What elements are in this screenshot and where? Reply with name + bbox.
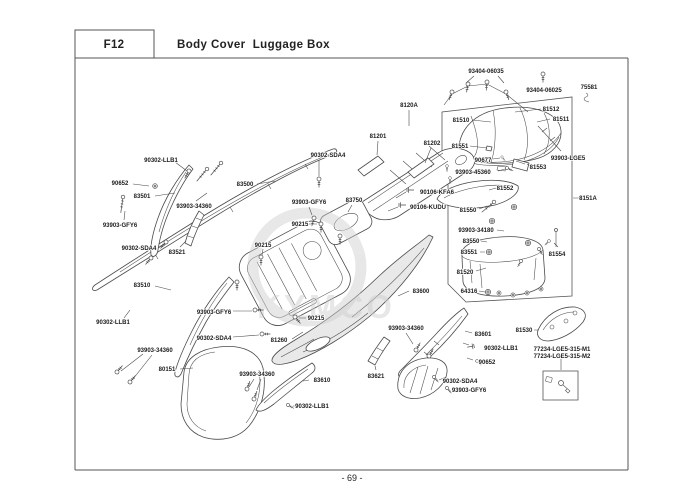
grommet-icon <box>489 218 494 223</box>
part-label: 8151A <box>579 196 597 202</box>
part-label: 90302-SDA4 <box>122 246 157 252</box>
part-label: 93903-34360 <box>137 348 173 354</box>
part-label: 93903-45360 <box>455 170 491 176</box>
part-label: 90106-KUDU <box>410 205 446 211</box>
part-label: 81530 <box>516 328 533 334</box>
nut-icon <box>497 291 501 295</box>
parts-diagram-canvas: F12 Body Cover Luggage Box - 69 - <box>0 0 700 495</box>
part-label: 83510 <box>134 283 151 289</box>
screw-icon <box>127 374 137 385</box>
long-screw-icon <box>119 195 125 213</box>
section-code: F12 <box>104 39 125 51</box>
clip-75581-drawing <box>584 93 589 102</box>
part-label: 93903-GFY6 <box>292 200 327 206</box>
part-drawings <box>93 93 589 439</box>
page-number: - 69 - <box>341 473 362 483</box>
part-label: 77234-LGE5-315-M1 <box>534 347 591 353</box>
screw-icon <box>317 177 321 188</box>
front-cover-80151-drawing <box>181 346 264 439</box>
nut-icon <box>539 287 543 291</box>
page-title: Body Cover Luggage Box <box>177 39 330 51</box>
part-label: 81520 <box>457 270 474 276</box>
part-label: 93903-GFY6 <box>452 388 487 394</box>
part-label: 90302-LLB1 <box>484 346 518 352</box>
part-label: 83501 <box>134 194 151 200</box>
part-label: 93903-34360 <box>388 326 424 332</box>
strip-83621-drawing <box>368 337 390 365</box>
nut-icon <box>511 293 515 297</box>
watermark-text: KYMCO <box>257 288 395 325</box>
part-label: 83550 <box>463 239 480 245</box>
part-label: 81550 <box>460 208 477 214</box>
part-label: 81260 <box>271 338 288 344</box>
nut-icon <box>525 291 529 295</box>
part-label: 90302-LLB1 <box>295 404 329 410</box>
key-set-drawing <box>545 376 570 393</box>
part-label: 90215 <box>255 243 272 249</box>
part-label: 75581 <box>581 85 598 91</box>
nut-icon <box>485 289 490 294</box>
part-label: 83601 <box>475 332 492 338</box>
part-label: 90215 <box>308 316 325 322</box>
part-label: 81553 <box>530 165 547 171</box>
part-label: 77234-LGE5-315-M2 <box>534 354 591 360</box>
part-label: 64316 <box>461 289 478 295</box>
part-label: 93404-06025 <box>526 88 562 94</box>
screw-icon <box>541 72 545 83</box>
catalog-page: F12 Body Cover Luggage Box - 69 - <box>0 0 700 495</box>
screw-icon <box>235 280 239 291</box>
part-label: 8120A <box>400 103 418 109</box>
part-label: 90302-LLB1 <box>144 158 178 164</box>
part-label: 90215 <box>292 222 309 228</box>
screw-icon <box>544 239 551 246</box>
part-label: 90302-SDA4 <box>443 379 478 385</box>
part-label: 81202 <box>424 141 441 147</box>
part-label: 81511 <box>553 117 570 123</box>
part-label: 90652 <box>479 360 496 366</box>
part-label: 93903-LGE5 <box>551 156 586 162</box>
nut-icon <box>525 240 530 245</box>
part-label: 83621 <box>368 374 385 380</box>
carrier-stay-81201-drawing <box>358 156 384 176</box>
part-label: 83610 <box>314 378 331 384</box>
part-label: 81551 <box>452 144 469 150</box>
part-label: 83750 <box>346 198 363 204</box>
part-label: 90652 <box>112 181 129 187</box>
screw-icon <box>503 89 510 100</box>
part-label: 81552 <box>497 186 514 192</box>
part-label: 83600 <box>413 289 430 295</box>
part-label: 90302-SDA4 <box>197 336 232 342</box>
long-screw-icon <box>195 166 209 182</box>
part-label: 80151 <box>159 367 176 373</box>
bolt-icon <box>467 343 475 350</box>
part-label: 90677 <box>475 158 492 164</box>
part-label: 93903-34360 <box>176 204 212 210</box>
mount-bracket-drawing <box>537 307 585 341</box>
part-label: 90106-KFA6 <box>420 190 455 196</box>
part-label: 81201 <box>370 134 387 140</box>
pin-81554-drawing <box>554 229 558 248</box>
part-label: 81554 <box>549 252 566 258</box>
part-label: 90302-SDA4 <box>311 153 346 159</box>
hinge-81551-drawing <box>486 146 492 151</box>
grommet-icon <box>486 249 491 254</box>
part-label: 81510 <box>453 118 470 124</box>
long-screw-icon <box>209 160 223 176</box>
part-label: 90302-LLB1 <box>96 320 130 326</box>
screw-icon <box>260 332 271 336</box>
rear-shell-drawing <box>398 358 447 399</box>
grommet-icon <box>511 204 516 209</box>
part-label: 93903-34360 <box>239 372 275 378</box>
part-label: 93903-GFY6 <box>103 223 138 229</box>
part-label: 93903-GFY6 <box>197 310 232 316</box>
part-label: 83551 <box>461 250 478 256</box>
part-label: 83521 <box>169 250 186 256</box>
part-label: 93903-34180 <box>458 228 494 234</box>
nut-icon <box>153 184 158 189</box>
part-label: 81512 <box>543 107 560 113</box>
part-label: 83500 <box>237 182 254 188</box>
screw-icon <box>484 80 489 91</box>
part-label: 93404-06035 <box>468 69 504 75</box>
lower-bucket-drawing <box>462 237 545 297</box>
